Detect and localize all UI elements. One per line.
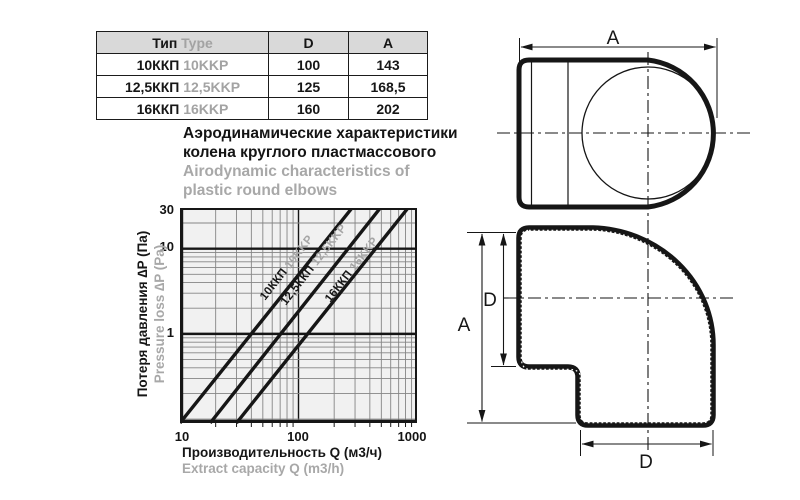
- cell-d: 100: [269, 54, 349, 76]
- title-ru-line1: Аэродинамические характеристики: [183, 124, 458, 143]
- x-tick-10: 10: [167, 429, 197, 444]
- chart-title: Аэродинамические характеристики колена к…: [183, 124, 458, 200]
- cell-a: 168,5: [349, 76, 428, 98]
- type-en: 10KKP: [183, 57, 228, 73]
- table-row: 10ККП 10KKP 100 143: [97, 54, 428, 76]
- type-ru: 12,5ККП: [125, 79, 179, 95]
- title-ru-line2: колена круглого пластмассового: [183, 143, 458, 162]
- y-axis-title-en: Pressure loss ∆P (Pa): [151, 204, 168, 424]
- side-view-drawing: A D D: [458, 221, 737, 473]
- dim-label-d-bottom: D: [639, 452, 653, 473]
- cell-type: 12,5ККП 12,5KKP: [97, 76, 269, 98]
- cell-d: 125: [269, 76, 349, 98]
- header-type-en: Type: [181, 35, 213, 51]
- dim-label-a-top: A: [607, 28, 620, 49]
- x-tick-100: 100: [281, 429, 315, 444]
- type-ru: 10ККП: [137, 57, 180, 73]
- top-view-drawing: A: [497, 28, 750, 222]
- dim-label-d-left: D: [483, 290, 497, 311]
- x-axis-title-ru: Производительность Q (м3/ч): [182, 445, 382, 461]
- header-d: D: [269, 32, 349, 54]
- elbow-technical-drawings: A A D: [450, 10, 770, 480]
- cell-type: 16ККП 16KKP: [97, 98, 269, 120]
- type-en: 16KKP: [183, 101, 228, 117]
- y-axis-title: Потеря давления ∆P (Па) Pressure loss ∆P…: [134, 204, 168, 424]
- header-type: Тип Type: [97, 32, 269, 54]
- type-ru: 16ККП: [137, 101, 180, 117]
- header-type-ru: Тип: [152, 35, 177, 51]
- x-axis-title: Производительность Q (м3/ч) Extract capa…: [182, 445, 382, 477]
- elbow-section-outline: [519, 228, 713, 425]
- cell-a: 143: [349, 54, 428, 76]
- cell-d: 160: [269, 98, 349, 120]
- header-a: A: [349, 32, 428, 54]
- type-en: 12,5KKP: [183, 79, 240, 95]
- title-en-line1: Airodynamic characteristics of: [183, 162, 458, 181]
- datasheet-page: Тип Type D A 10ККП 10KKP 100 143 12,5ККП…: [0, 0, 800, 500]
- table-row: 12,5ККП 12,5KKP 125 168,5: [97, 76, 428, 98]
- pressure-loss-chart: [180, 208, 417, 429]
- x-axis-title-en: Extract capacity Q (m3/h): [182, 461, 382, 477]
- title-en-line2: plastic round elbows: [183, 181, 458, 200]
- y-axis-title-ru: Потеря давления ∆P (Па): [134, 204, 151, 424]
- spec-table: Тип Type D A 10ККП 10KKP 100 143 12,5ККП…: [96, 31, 428, 120]
- dim-label-a-side: A: [458, 315, 471, 336]
- table-header-row: Тип Type D A: [97, 32, 428, 54]
- cell-type: 10ККП 10KKP: [97, 54, 269, 76]
- cell-a: 202: [349, 98, 428, 120]
- x-tick-1000: 1000: [391, 429, 433, 444]
- table-row: 16ККП 16KKP 160 202: [97, 98, 428, 120]
